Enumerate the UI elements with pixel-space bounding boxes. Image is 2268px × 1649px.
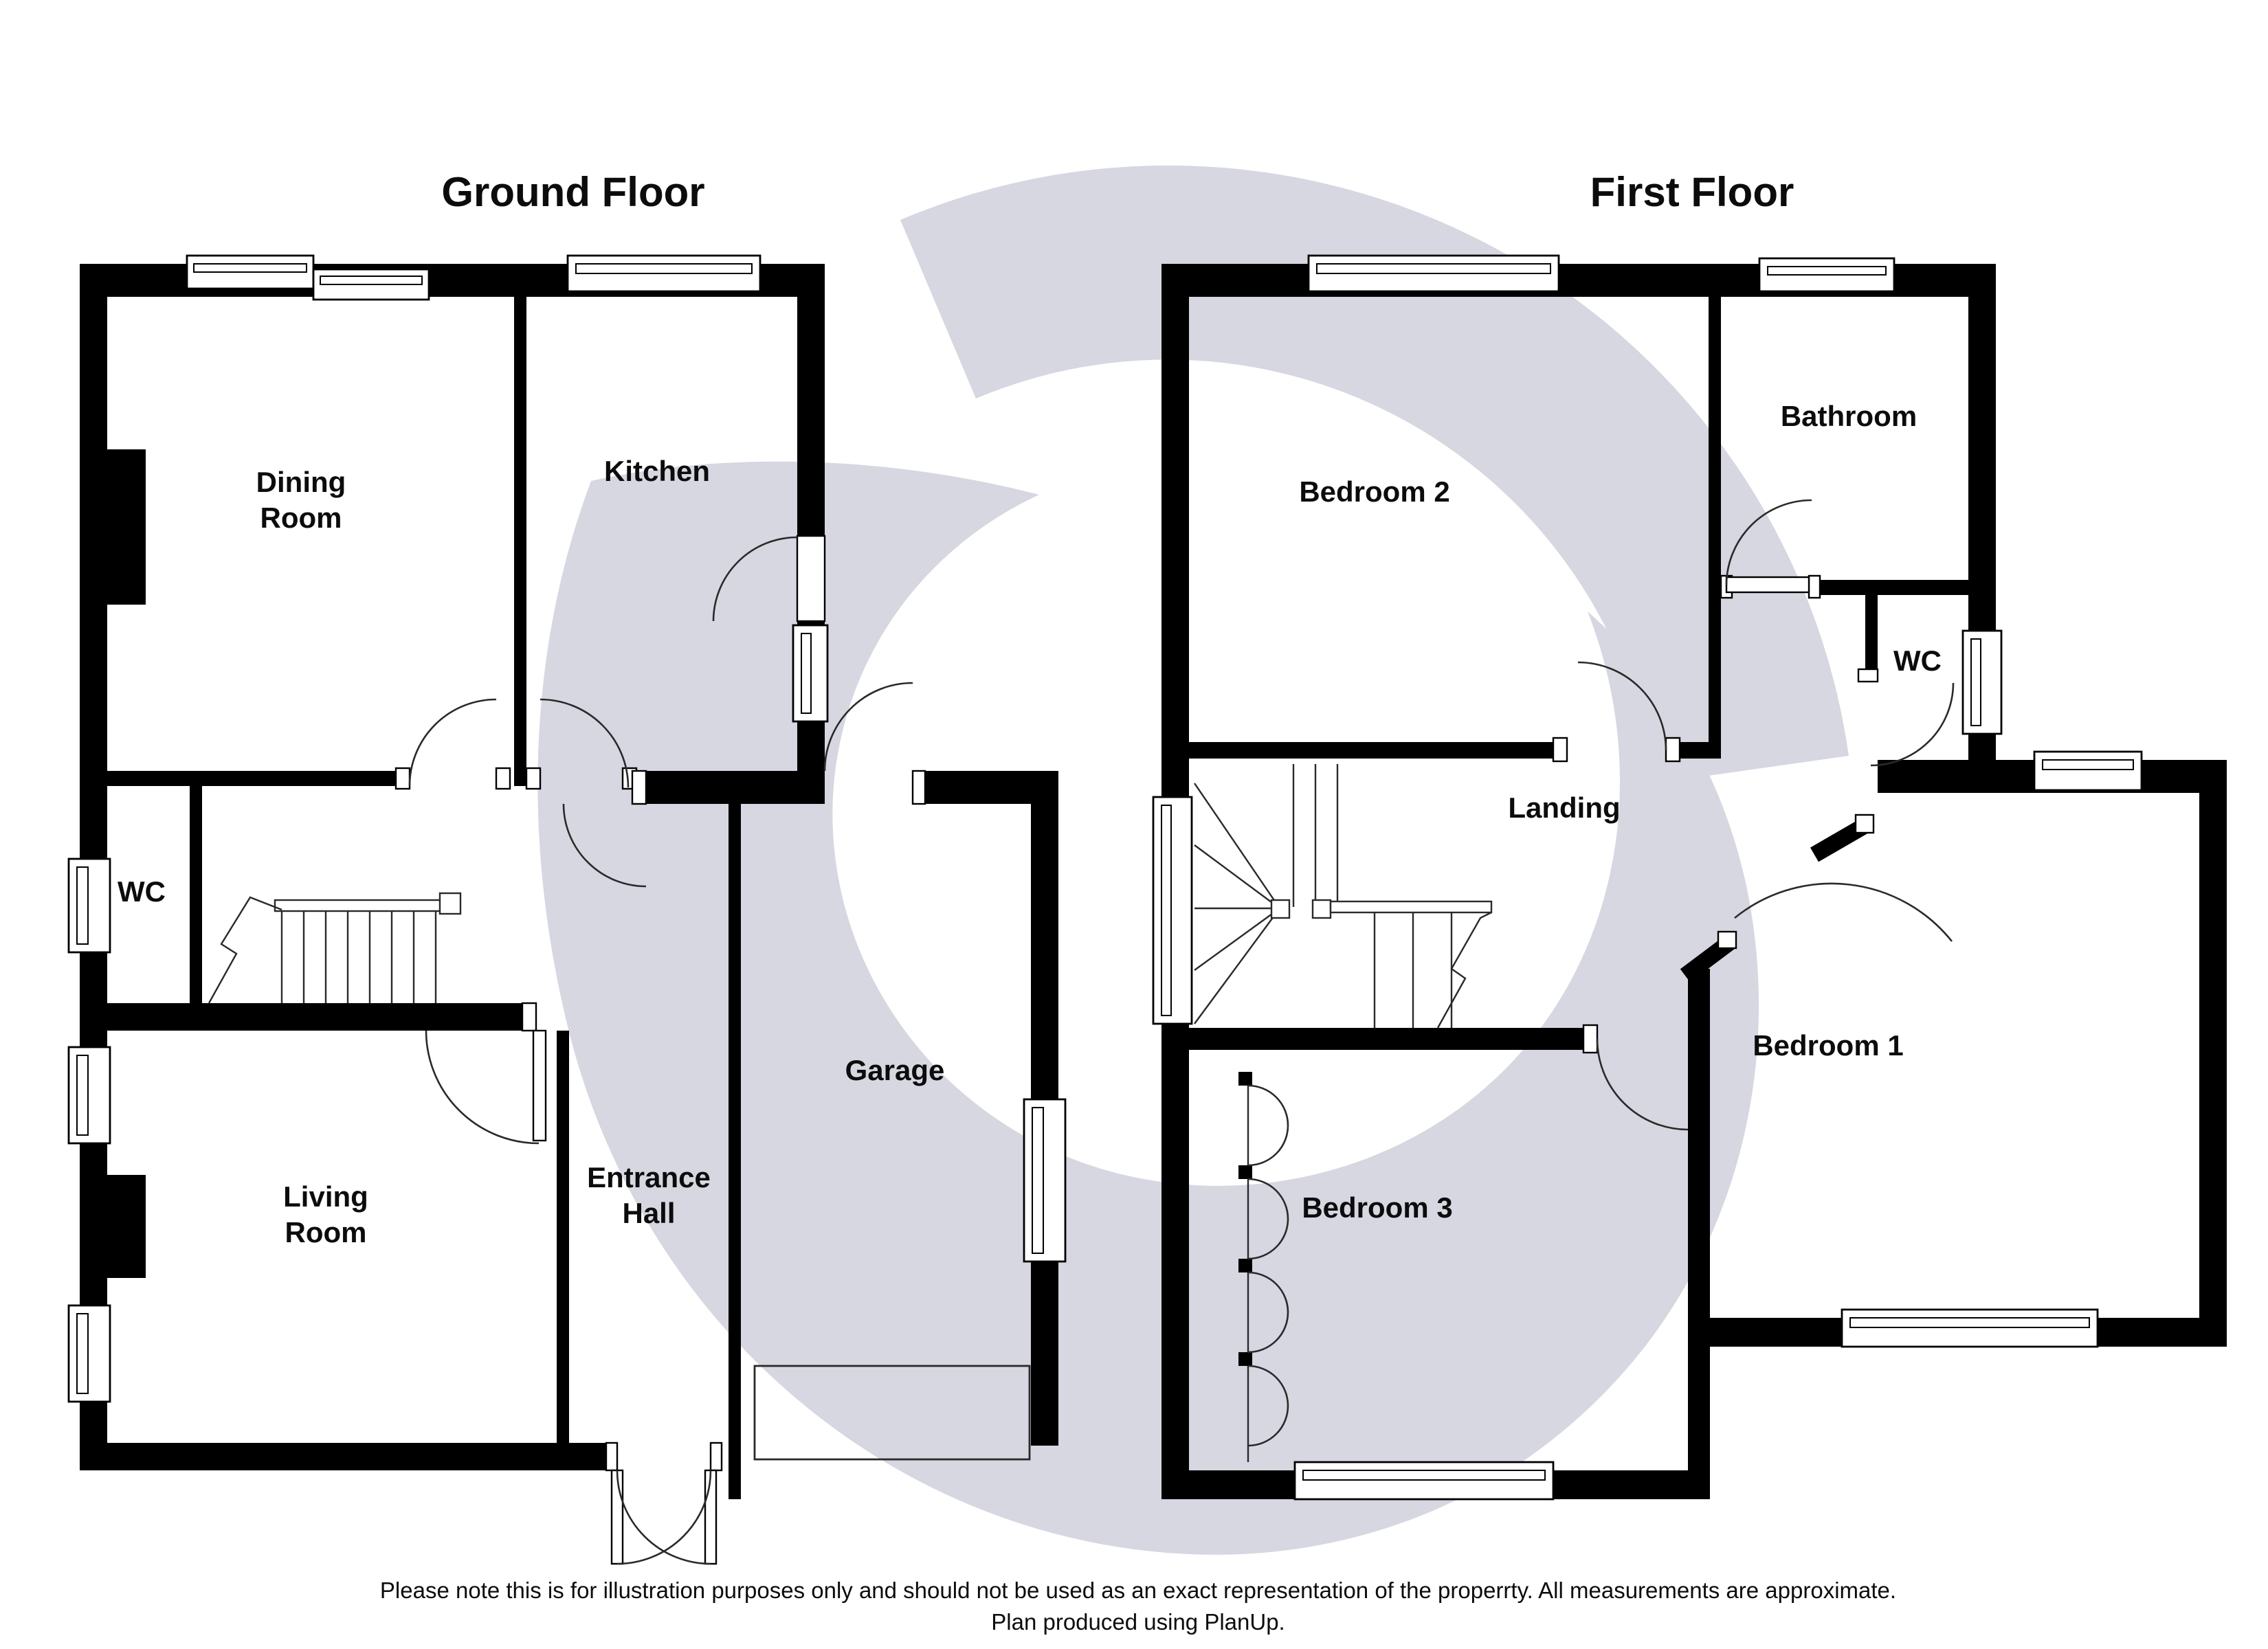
first-floor-title: First Floor	[1590, 169, 1794, 215]
living-room-label: LivingRoom	[283, 1180, 368, 1248]
ff-wc-label: WC	[1893, 644, 1942, 677]
bathroom-window	[1759, 258, 1894, 291]
living-chimney-breast	[107, 1175, 146, 1278]
ground-floor-title: Ground Floor	[441, 169, 704, 215]
ground-floor-stairs	[209, 893, 460, 1003]
landing-label: Landing	[1508, 792, 1620, 824]
ff-wc-door	[1858, 669, 1953, 765]
wc-window	[69, 859, 110, 952]
landing-stairs-window	[1153, 797, 1192, 1024]
dining-window-2	[313, 269, 429, 300]
ff-wc-window	[1963, 631, 2001, 734]
gf-wc-label: WC	[118, 875, 166, 908]
newel-post	[440, 893, 460, 914]
bedroom3-label: Bedroom 3	[1302, 1191, 1452, 1224]
bedroom1-label: Bedroom 1	[1753, 1029, 1903, 1062]
bedroom1-bottom-window	[1842, 1310, 2098, 1347]
newel-post	[1313, 900, 1331, 918]
dining-room-label: DiningRoom	[256, 466, 346, 534]
living-window-2	[69, 1305, 110, 1402]
bedroom2-window	[1309, 256, 1559, 291]
disclaimer-line1: Please note this is for illustration pur…	[380, 1578, 1896, 1603]
dining-door	[396, 699, 510, 789]
living-window-1	[69, 1047, 110, 1143]
garage-label: Garage	[845, 1054, 945, 1086]
newel-post	[1271, 900, 1289, 918]
bathroom-label: Bathroom	[1781, 400, 1917, 432]
bedroom2-label: Bedroom 2	[1299, 475, 1449, 508]
bedroom3-window	[1295, 1462, 1553, 1499]
kitchen-label: Kitchen	[604, 455, 710, 487]
floorplan-canvas: Ground Floor DiningRoom Kitchen WC Livin…	[0, 0, 2268, 1649]
footer-disclaimer: Please note this is for illustration pur…	[380, 1578, 1896, 1635]
first-floor-stairs	[1194, 764, 1491, 1028]
dining-window-1	[187, 256, 313, 289]
disclaimer-line2: Plan produced using PlanUp.	[991, 1609, 1285, 1635]
front-entrance-double-door	[606, 1443, 722, 1564]
kitchen-side-window	[793, 625, 827, 721]
dining-chimney-breast	[107, 449, 146, 605]
kitchen-window	[568, 256, 760, 291]
garage-window	[1024, 1099, 1065, 1261]
bedroom1-top-window	[2034, 752, 2142, 790]
